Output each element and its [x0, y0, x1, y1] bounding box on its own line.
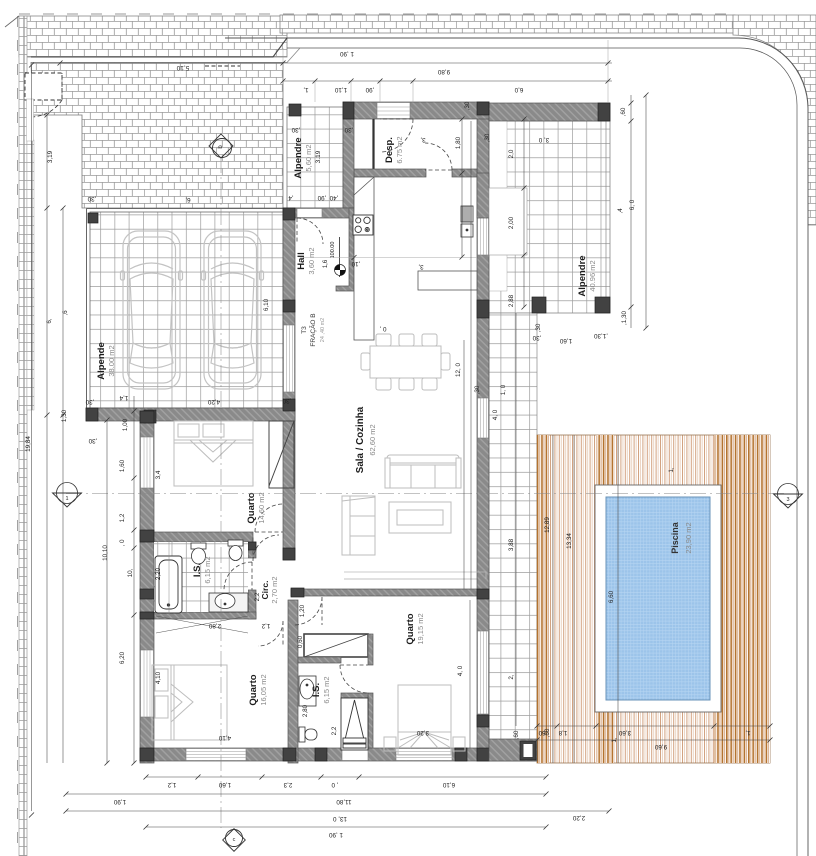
svg-text:2,88: 2,88 — [508, 294, 515, 307]
svg-text:1, 0: 1, 0 — [500, 384, 507, 395]
svg-text:100.00: 100.00 — [330, 242, 336, 259]
svg-text:3,: 3, — [420, 136, 426, 143]
svg-text:,30: ,30 — [474, 385, 481, 394]
svg-text:1,2: 1,2 — [167, 781, 176, 788]
svg-text:1,10: 1,10 — [334, 86, 347, 93]
svg-text:6,0: 6,0 — [514, 86, 523, 93]
svg-text:2,3: 2,3 — [283, 781, 292, 788]
svg-text:62,60 m2: 62,60 m2 — [368, 424, 377, 455]
svg-text:,90: ,90 — [317, 194, 326, 201]
svg-text:3.19: 3.19 — [315, 150, 322, 163]
svg-text:14,60 m2: 14,60 m2 — [257, 492, 266, 523]
svg-text:,6: ,6 — [62, 310, 69, 316]
svg-text:3, 0: 3, 0 — [538, 136, 549, 143]
svg-text:,30: ,30 — [535, 323, 542, 332]
svg-text:1,6: 1,6 — [323, 259, 329, 268]
svg-text:4,20: 4,20 — [207, 398, 220, 405]
svg-text:10,: 10, — [127, 568, 134, 577]
svg-text:6,10: 6,10 — [442, 781, 455, 788]
svg-text:2,70 m2: 2,70 m2 — [270, 576, 279, 603]
svg-text:6,60: 6,60 — [608, 590, 615, 603]
svg-text:19,84: 19,84 — [25, 436, 32, 452]
svg-text:6,10: 6,10 — [263, 298, 270, 311]
svg-text:Hall: Hall — [296, 252, 307, 269]
svg-text:1,80: 1,80 — [455, 136, 462, 149]
svg-text:1,90: 1,90 — [113, 798, 126, 805]
svg-text:4,10: 4,10 — [218, 734, 231, 741]
svg-text:Alpendre: Alpendre — [577, 255, 588, 296]
svg-text:,30: ,30 — [282, 397, 291, 404]
svg-text:6,15 m2: 6,15 m2 — [203, 556, 212, 583]
svg-text:,1,30: ,1,30 — [594, 332, 609, 339]
svg-text:23,90 m2: 23,90 m2 — [684, 522, 693, 553]
svg-text:1,: 1, — [303, 86, 309, 93]
svg-text:0,60: 0,60 — [297, 635, 304, 648]
svg-text:5,60 m2: 5,60 m2 — [304, 144, 313, 171]
svg-text:16,05 m2: 16,05 m2 — [259, 674, 268, 705]
svg-text:Piscina: Piscina — [670, 521, 680, 554]
svg-text:c: c — [233, 837, 236, 843]
svg-text:4, 0: 4, 0 — [492, 409, 499, 420]
svg-text:1,8: 1,8 — [558, 729, 567, 736]
svg-text:1,60: 1,60 — [218, 781, 231, 788]
svg-text:Desp.: Desp. — [384, 137, 395, 163]
svg-text:I.S.: I.S. — [192, 563, 203, 577]
svg-text:2,20: 2,20 — [572, 814, 585, 821]
svg-text:,30: ,30 — [344, 126, 353, 133]
svg-text:1,4: 1,4 — [119, 394, 128, 401]
svg-text:Quarto: Quarto — [246, 492, 257, 523]
svg-text:1 ,90: 1 ,90 — [329, 831, 344, 838]
svg-text:3,20: 3,20 — [416, 729, 429, 736]
svg-text:13, 0: 13, 0 — [333, 815, 348, 822]
svg-text:11,80: 11,80 — [336, 798, 352, 805]
svg-text:4, 0: 4, 0 — [457, 665, 464, 676]
svg-text:Sala / Cozinha: Sala / Cozinha — [355, 406, 366, 473]
svg-text:6,20: 6,20 — [119, 651, 126, 664]
svg-text:Circ.: Circ. — [260, 581, 270, 600]
svg-text:1,2: 1,2 — [261, 622, 270, 629]
svg-text:,30: ,30 — [484, 133, 491, 142]
svg-text:3,4: 3,4 — [155, 470, 162, 479]
svg-text:1,00: 1,00 — [122, 418, 129, 431]
svg-text:12,89: 12,89 — [544, 517, 551, 533]
svg-text:2,00: 2,00 — [508, 216, 515, 229]
svg-text:4,10: 4,10 — [155, 671, 162, 684]
svg-text:19,15 m2: 19,15 m2 — [416, 613, 425, 644]
svg-text:, 0: , 0 — [119, 539, 126, 546]
svg-text:1,: 1, — [668, 467, 675, 473]
svg-text:Alpendre: Alpendre — [293, 137, 304, 178]
svg-text:,30: ,30 — [88, 437, 97, 444]
svg-text:,30: ,30 — [464, 101, 471, 110]
svg-text:,4: ,4 — [617, 208, 624, 214]
svg-text:,60: ,60 — [620, 107, 627, 116]
svg-text:,40: ,40 — [329, 194, 338, 201]
svg-text:1,: 1, — [611, 737, 618, 743]
svg-text:Alpende: Alpende — [96, 342, 107, 379]
svg-text:6, 0: 6, 0 — [629, 199, 636, 210]
svg-text:1 ,90: 1 ,90 — [340, 50, 355, 57]
svg-text:,4: ,4 — [288, 194, 294, 201]
svg-text:3,19: 3,19 — [47, 150, 54, 163]
svg-text:5,10: 5,10 — [176, 64, 189, 71]
svg-text:Quarto: Quarto — [248, 674, 259, 705]
svg-text:2,20: 2,20 — [155, 567, 162, 580]
svg-text:9,60: 9,60 — [654, 743, 667, 750]
svg-text:,60: ,60 — [513, 730, 520, 739]
svg-text:12, 0: 12, 0 — [455, 363, 462, 378]
svg-text:Quarto: Quarto — [405, 613, 416, 644]
svg-text:1,: 1, — [745, 729, 751, 736]
svg-text:6.75 m2: 6.75 m2 — [395, 136, 404, 163]
svg-text:6,15 m2: 6,15 m2 — [322, 676, 331, 703]
svg-text:, 0: , 0 — [331, 781, 338, 788]
svg-text:2,: 2, — [508, 674, 515, 680]
svg-text:2,80: 2,80 — [208, 622, 221, 629]
svg-text:3,60: 3,60 — [618, 729, 631, 736]
svg-text:T3: T3 — [301, 326, 308, 334]
svg-text:1,20: 1,20 — [299, 604, 306, 617]
svg-text:2,0: 2,0 — [508, 149, 515, 158]
svg-text:2,2: 2,2 — [331, 726, 338, 735]
svg-text:3,: 3, — [418, 263, 424, 270]
svg-text:,30: ,30 — [85, 398, 94, 405]
svg-text:3,60 m2: 3,60 m2 — [307, 247, 316, 274]
svg-text:1,30: 1,30 — [61, 409, 68, 422]
svg-text:1: 1 — [65, 496, 68, 502]
svg-text:6,: 6, — [185, 196, 191, 203]
svg-text:3,88: 3,88 — [508, 538, 515, 551]
svg-text:I.S.: I.S. — [311, 683, 322, 697]
svg-text:1,60: 1,60 — [559, 337, 572, 344]
svg-text:,30: ,30 — [291, 126, 300, 133]
svg-text:40.96 m2: 40.96 m2 — [588, 260, 597, 291]
svg-text:10,10: 10,10 — [102, 545, 109, 561]
svg-text:13,34: 13,34 — [566, 533, 573, 549]
svg-text:6,: 6, — [46, 318, 53, 324]
svg-text:,90: ,90 — [365, 86, 374, 93]
svg-text:2,80: 2,80 — [302, 704, 309, 717]
svg-text:1,2: 1,2 — [119, 513, 126, 522]
svg-text:3: 3 — [786, 497, 789, 503]
svg-text:2,2: 2,2 — [254, 592, 261, 601]
svg-text:,30: ,30 — [87, 195, 96, 202]
svg-text:38.00 m2: 38.00 m2 — [107, 345, 116, 376]
svg-text:24 ,40 m2: 24 ,40 m2 — [320, 318, 326, 342]
svg-text:,1,30: ,1,30 — [621, 311, 628, 326]
svg-text:1,60: 1,60 — [119, 459, 126, 472]
svg-text:0 ,: 0 , — [379, 325, 386, 332]
svg-text:,10: ,10 — [351, 260, 360, 267]
svg-text:,30: ,30 — [532, 334, 541, 341]
svg-text:FRAÇÃO B: FRAÇÃO B — [308, 313, 317, 346]
svg-text:,60: ,60 — [544, 728, 551, 737]
svg-text:9,80: 9,80 — [437, 68, 450, 75]
